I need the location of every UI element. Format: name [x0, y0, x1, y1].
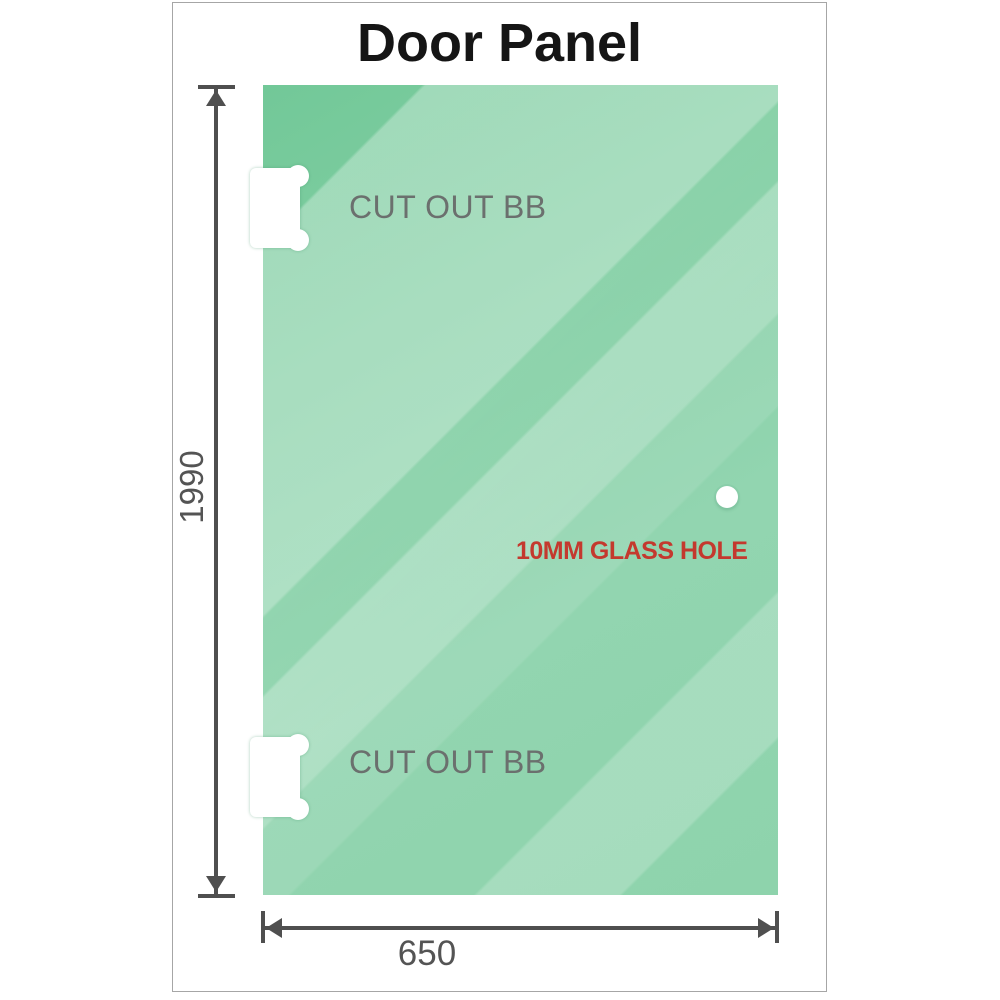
arrow-left-icon: [266, 918, 282, 938]
arrow-right-icon: [758, 918, 774, 938]
cutout-label-bottom: CUT OUT BB: [349, 744, 547, 781]
dimension-cap-bottom: [198, 894, 235, 898]
glass-hole-icon: [716, 486, 738, 508]
hinge-cutout-icon: [250, 729, 312, 825]
width-dimension-label: 650: [377, 934, 477, 974]
dimension-tick-right: [775, 911, 779, 943]
arrow-down-icon: [206, 876, 226, 892]
arrow-up-icon: [206, 90, 226, 106]
glass-hole-label: 10MM GLASS HOLE: [516, 537, 747, 566]
cutout-label-top: CUT OUT BB: [349, 189, 547, 226]
hinge-cutout-icon: [250, 160, 312, 256]
height-dimension-line: [214, 88, 218, 894]
page-title: Door Panel: [172, 12, 827, 74]
width-dimension-line: [265, 926, 775, 930]
height-dimension-label: 1990: [172, 451, 212, 523]
